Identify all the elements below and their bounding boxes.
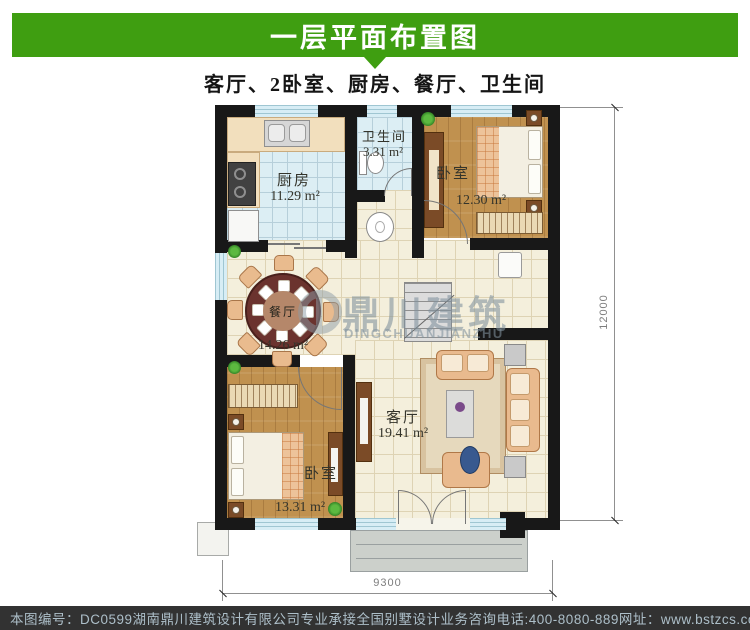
kitchen-fridge bbox=[228, 210, 259, 242]
room-area-bedroom-top: 12.30 m² bbox=[436, 193, 526, 209]
window-kitchen bbox=[255, 105, 318, 117]
table-flowers-icon bbox=[455, 402, 465, 412]
room-label-dining: 餐厅 bbox=[263, 303, 303, 320]
room-label-living: 客厅 bbox=[382, 406, 424, 427]
bathroom-door-leaf bbox=[411, 168, 412, 196]
porch-step-line bbox=[356, 558, 522, 559]
side-table bbox=[504, 456, 526, 478]
pillow bbox=[231, 436, 244, 464]
wardrobe-bottom bbox=[228, 384, 298, 408]
poster-page: 一层平面布置图 客厅、2卧室、厨房、餐厅、卫生间 bbox=[0, 0, 750, 630]
burner-icon bbox=[234, 186, 246, 198]
window-living-left bbox=[356, 518, 396, 530]
lamp-icon bbox=[530, 114, 538, 122]
sliding-door bbox=[294, 247, 326, 249]
room-label-bedroom-top: 卧室 bbox=[432, 162, 474, 183]
washbasin-drain bbox=[375, 221, 385, 233]
lamp-icon bbox=[232, 418, 240, 426]
chair bbox=[274, 255, 294, 271]
wall-bedroom-top-bottom bbox=[470, 238, 560, 250]
entry-door-leaf bbox=[465, 490, 466, 524]
coffee-table bbox=[446, 390, 474, 438]
wall-kitchen-bath bbox=[345, 105, 357, 258]
chair bbox=[227, 300, 243, 320]
pillow bbox=[528, 130, 541, 160]
room-area-bedroom-bottom: 13.31 m² bbox=[255, 500, 345, 516]
window-bedroom-top bbox=[451, 105, 512, 117]
room-label-bathroom: 卫生间 bbox=[357, 126, 412, 145]
pillow bbox=[231, 468, 244, 496]
wardrobe-top bbox=[476, 212, 543, 234]
watermark-logo-bar bbox=[316, 298, 322, 326]
subtitle: 客厅、2卧室、厨房、餐厅、卫生间 bbox=[0, 68, 750, 97]
page-title: 一层平面布置图 bbox=[270, 16, 480, 55]
window-bathroom bbox=[367, 105, 397, 117]
dim-label-width: 9300 bbox=[222, 577, 553, 589]
lamp-icon bbox=[232, 506, 240, 514]
porch-step-line bbox=[356, 544, 522, 545]
room-label-bedroom-bottom: 卧室 bbox=[300, 462, 342, 483]
lamp-icon bbox=[530, 204, 538, 212]
window-dining bbox=[215, 253, 227, 300]
plant-icon bbox=[228, 361, 241, 374]
room-area-bathroom: 3.31 m² bbox=[353, 144, 413, 160]
sofa-cushion bbox=[510, 373, 530, 395]
wall-right bbox=[548, 105, 560, 530]
bedroom-bottom-door-leaf bbox=[341, 367, 342, 410]
dim-line-height bbox=[614, 107, 615, 520]
room-area-dining: 14.26 m² bbox=[236, 338, 330, 354]
footer-company: 湖南鼎川建筑设计有限公司专业承接全国别墅设计业务 bbox=[133, 608, 469, 628]
room-area-living: 19.41 m² bbox=[358, 426, 448, 442]
sofa-cushion bbox=[441, 354, 463, 372]
window-bedroom-bottom bbox=[255, 518, 318, 530]
sink-basin bbox=[289, 124, 306, 142]
entry-door-leaf bbox=[398, 490, 399, 524]
sofa-cushion bbox=[510, 425, 530, 447]
sink-basin bbox=[268, 124, 285, 142]
footer-bar: 本图编号：DC0599 湖南鼎川建筑设计有限公司专业承接全国别墅设计业务 咨询电… bbox=[0, 606, 750, 630]
footer-website: 网址：www.bstzcs.com bbox=[619, 608, 750, 628]
title-bar: 一层平面布置图 bbox=[12, 13, 738, 57]
footer-phone: 咨询电话:400-8080-889 bbox=[469, 608, 619, 628]
burner-icon bbox=[234, 168, 246, 180]
plant-icon bbox=[228, 245, 241, 258]
side-table bbox=[504, 344, 526, 366]
wall-kitchen-bottom-right bbox=[326, 240, 345, 252]
bed-blanket bbox=[477, 127, 499, 197]
wall-bath-bedroom bbox=[412, 105, 424, 258]
room-label-kitchen: 厨房 bbox=[254, 169, 334, 190]
wall-bath-bottom bbox=[345, 190, 385, 202]
person-figure bbox=[460, 446, 480, 474]
wall-left bbox=[215, 105, 227, 530]
watermark-en: DINGCHUANJIANZHU bbox=[344, 326, 504, 341]
sliding-door bbox=[268, 243, 300, 245]
window-living-right bbox=[470, 518, 506, 530]
hall-fridge bbox=[498, 252, 522, 278]
pillow bbox=[528, 164, 541, 194]
room-area-kitchen: 11.29 m² bbox=[250, 189, 340, 205]
dim-label-height: 12000 bbox=[598, 282, 610, 342]
footer-plan-number: 本图编号：DC0599 bbox=[10, 608, 133, 628]
plant-icon bbox=[421, 112, 435, 126]
sofa-cushion bbox=[510, 399, 530, 421]
sofa-cushion bbox=[467, 354, 489, 372]
dim-line-width bbox=[222, 593, 553, 594]
